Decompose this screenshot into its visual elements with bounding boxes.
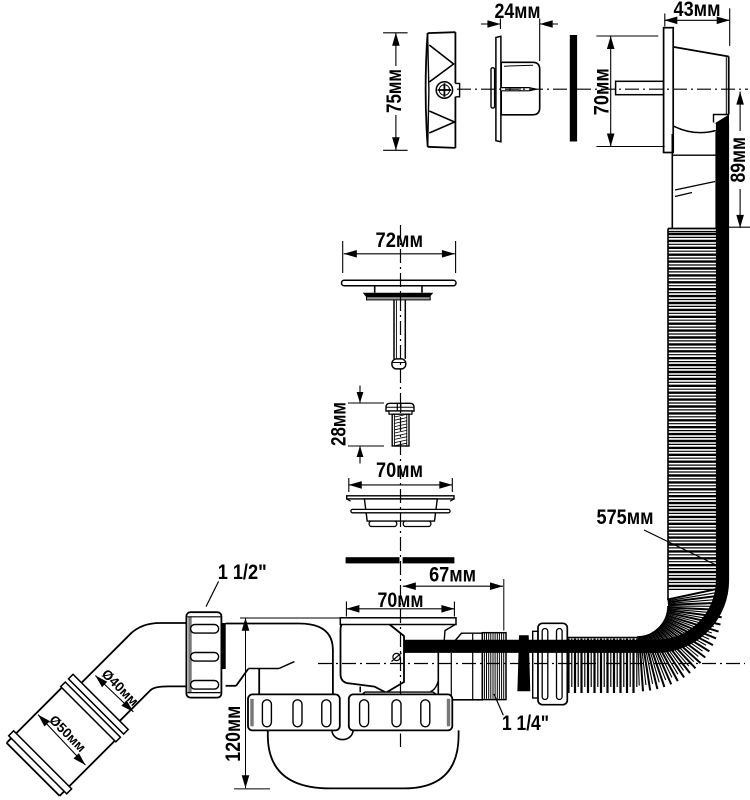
svg-text:72мм: 72мм — [376, 229, 424, 252]
svg-text:89мм: 89мм — [727, 137, 750, 183]
svg-text:43мм: 43мм — [674, 0, 721, 21]
svg-text:120мм: 120мм — [222, 706, 245, 762]
svg-text:75мм: 75мм — [383, 69, 406, 113]
svg-text:575мм: 575мм — [597, 506, 654, 529]
svg-text:28мм: 28мм — [328, 402, 351, 446]
svg-text:67мм: 67мм — [429, 564, 476, 587]
svg-text:24мм: 24мм — [495, 0, 541, 23]
svg-text:70мм: 70мм — [590, 68, 613, 115]
svg-text:70мм: 70мм — [376, 459, 423, 482]
svg-text:1 1/4": 1 1/4" — [502, 712, 549, 735]
svg-text:1 1/2": 1 1/2" — [218, 561, 267, 584]
svg-text:70мм: 70мм — [378, 589, 424, 612]
